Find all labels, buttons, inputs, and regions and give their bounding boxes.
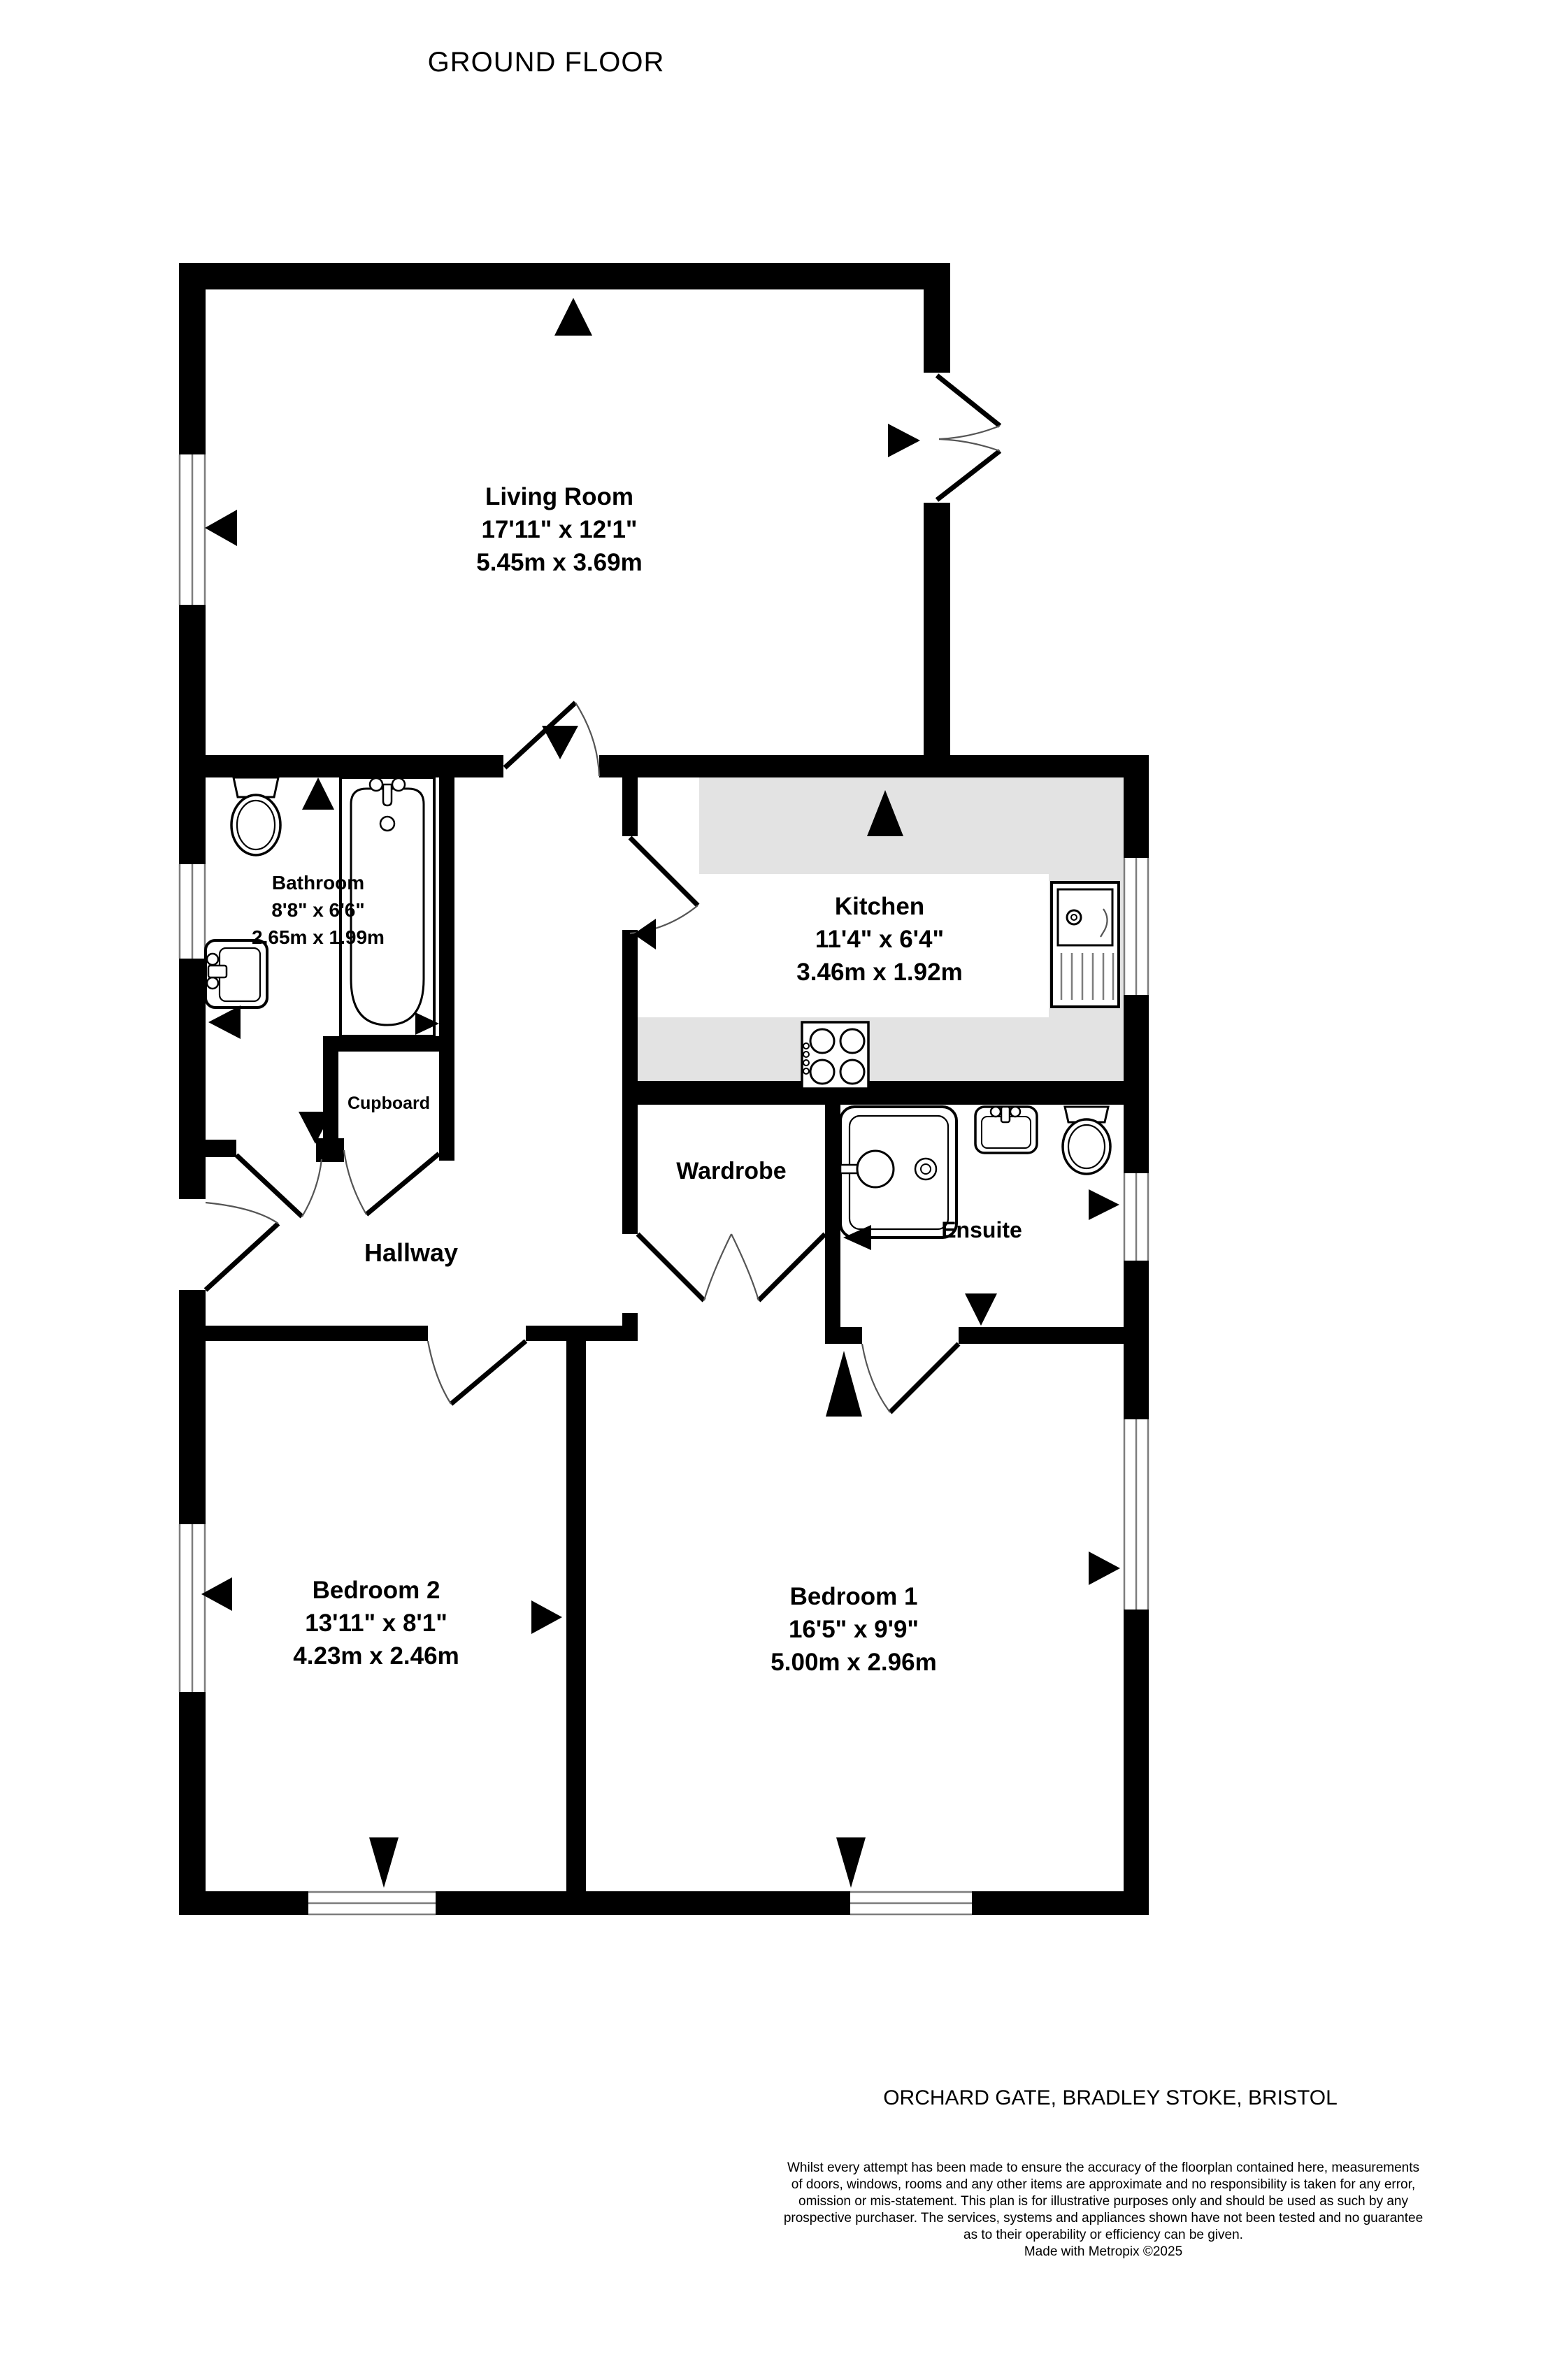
- room-dims-metric: 5.45m x 3.69m: [476, 549, 642, 576]
- ensuite-sink-icon: [975, 1107, 1037, 1153]
- toilet-icon: [231, 777, 280, 855]
- bedroom1-right-window: [1124, 1419, 1148, 1610]
- wall-cupboard-top: [323, 1036, 454, 1052]
- room-dims-imperial: 16'5" x 9'9": [789, 1616, 919, 1643]
- kitchen-window: [1124, 858, 1148, 995]
- wall-bedroom-divider: [566, 1341, 586, 1891]
- wall-bedroom1-top-stub: [825, 1327, 862, 1344]
- kitchen-sink-icon: [1052, 882, 1119, 1007]
- wall-ensuite-left: [825, 1105, 840, 1344]
- patio-double-doors: [937, 375, 1000, 500]
- worktop-top: [699, 777, 1124, 874]
- wall-bottom-2: [436, 1891, 850, 1915]
- arrow-down-bedroom2: [369, 1837, 399, 1888]
- wardrobe-label: Wardrobe: [676, 1158, 786, 1184]
- page-title: GROUND FLOOR: [428, 47, 665, 78]
- stove-icon: [802, 1022, 868, 1089]
- wall-left-4: [179, 1290, 206, 1524]
- bedroom2-left-window: [180, 1524, 205, 1692]
- wall-left-5: [179, 1692, 206, 1915]
- wall-right-4: [1124, 1610, 1149, 1915]
- wardrobe-doors: [638, 1234, 825, 1300]
- wall-bedroom2-top-stub: [622, 1313, 638, 1341]
- bathroom-window: [180, 864, 205, 959]
- bedroom2-bottom-window: [308, 1892, 436, 1914]
- room-name: Bathroom: [272, 872, 364, 894]
- disclaimer-credit: Made with Metropix ©2025: [1024, 2244, 1182, 2259]
- ensuite-label: Ensuite: [941, 1217, 1022, 1242]
- cupboard-door: [344, 1150, 439, 1214]
- wall-bedroom2-top-left: [179, 1326, 428, 1341]
- room-dims-metric: 5.00m x 2.96m: [771, 1649, 936, 1676]
- arrow-right-ensuite: [1089, 1189, 1119, 1220]
- bedroom2-door: [428, 1341, 526, 1404]
- arrow-down-ensuite: [965, 1293, 997, 1326]
- wall-livingroom-right-2: [924, 503, 950, 777]
- room-dims-imperial: 17'11" x 12'1": [481, 516, 637, 543]
- wall-bathroom-bottom-stub: [206, 1140, 236, 1157]
- property-address: ORCHARD GATE, BRADLEY STOKE, BRISTOL: [883, 2086, 1338, 2109]
- room-dims-imperial: 11'4" x 6'4": [815, 926, 944, 953]
- arrow-left-livingroom: [205, 510, 237, 546]
- wall-kitchen-left-1: [622, 777, 638, 836]
- wall-bedroom2-top-right: [526, 1326, 638, 1341]
- disclaimer-line: prospective purchaser. The services, sys…: [784, 2211, 1423, 2225]
- wall-kitchen-bottom: [622, 1081, 1149, 1105]
- worktop-bottom: [638, 1017, 1124, 1081]
- bathroom-door: [236, 1155, 322, 1217]
- bedroom1-label: Bedroom 1 16'5" x 9'9" 5.00m x 2.96m: [771, 1583, 936, 1676]
- disclaimer: Whilst every attempt has been made to en…: [784, 2160, 1423, 2259]
- windows: [180, 454, 1148, 1914]
- disclaimer-line: Whilst every attempt has been made to en…: [787, 2160, 1419, 2175]
- wall-livingroom-right-1: [924, 263, 950, 373]
- room-dims-metric: 2.65m x 1.99m: [252, 926, 385, 948]
- kitchen-door: [630, 838, 698, 933]
- arrow-down-bedroom1: [836, 1837, 866, 1888]
- arrow-up-bedroom1: [826, 1351, 862, 1417]
- bedroom1-bottom-window: [850, 1892, 972, 1914]
- ensuite-toilet-icon: [1063, 1107, 1110, 1174]
- ensuite-door: [862, 1344, 959, 1412]
- wall-left-2: [179, 605, 206, 864]
- floorplan-drawing: GROUND FLOOR Living Room 17'11" x 12'1" …: [0, 0, 1555, 2380]
- arrow-up-bathroom: [302, 777, 334, 810]
- room-dims-imperial: 13'11" x 8'1": [305, 1610, 447, 1637]
- disclaimer-line: omission or mis-statement. This plan is …: [798, 2194, 1408, 2209]
- wall-top: [179, 263, 950, 289]
- wall-cupboard-stub: [316, 1138, 344, 1162]
- wall-mid-left: [179, 755, 503, 777]
- kitchen-label: Kitchen 11'4" x 6'4" 3.46m x 1.92m: [796, 893, 962, 986]
- wall-bedroom1-top: [959, 1327, 1149, 1344]
- room-name: Bedroom 2: [313, 1577, 440, 1604]
- arrow-down-livingroom: [542, 726, 578, 759]
- room-dims-metric: 3.46m x 1.92m: [796, 959, 962, 986]
- shower-icon: [840, 1107, 956, 1238]
- room-name: Living Room: [485, 483, 633, 510]
- ensuite-window: [1124, 1173, 1148, 1261]
- front-door: [206, 1203, 278, 1290]
- wall-bathroom-right: [439, 777, 454, 1161]
- bathroom-sink-icon: [206, 940, 267, 1008]
- arrow-right-bedroom2: [531, 1600, 562, 1634]
- wall-left-3: [179, 959, 206, 1199]
- arrow-left-bathroom: [208, 1005, 241, 1039]
- wall-mid-right: [599, 755, 1149, 777]
- living-room-window: [180, 454, 205, 605]
- room-name: Bedroom 1: [790, 1583, 918, 1610]
- room-name: Kitchen: [835, 893, 924, 920]
- arrow-right-livingroom: [888, 424, 920, 457]
- wall-bottom-1: [179, 1891, 308, 1915]
- arrow-left-bedroom2: [201, 1577, 232, 1611]
- disclaimer-line: of doors, windows, rooms and any other i…: [791, 2177, 1415, 2192]
- arrow-right-bedroom1: [1089, 1551, 1120, 1585]
- wall-left-1: [179, 263, 206, 454]
- wall-right-1: [1124, 755, 1149, 858]
- cupboard-label: Cupboard: [347, 1094, 430, 1113]
- living-room-label: Living Room 17'11" x 12'1" 5.45m x 3.69m: [476, 483, 642, 576]
- disclaimer-line: as to their operability or efficiency ca…: [963, 2228, 1243, 2242]
- hallway-label: Hallway: [364, 1238, 458, 1267]
- wall-bottom-3: [972, 1891, 1149, 1915]
- floorplan-page: GROUND FLOOR Living Room 17'11" x 12'1" …: [0, 0, 1555, 2380]
- arrow-up-livingroom: [554, 298, 592, 336]
- bedroom2-label: Bedroom 2 13'11" x 8'1" 4.23m x 2.46m: [293, 1577, 459, 1670]
- room-dims-imperial: 8'8" x 6'6": [271, 899, 364, 921]
- room-dims-metric: 4.23m x 2.46m: [293, 1642, 459, 1670]
